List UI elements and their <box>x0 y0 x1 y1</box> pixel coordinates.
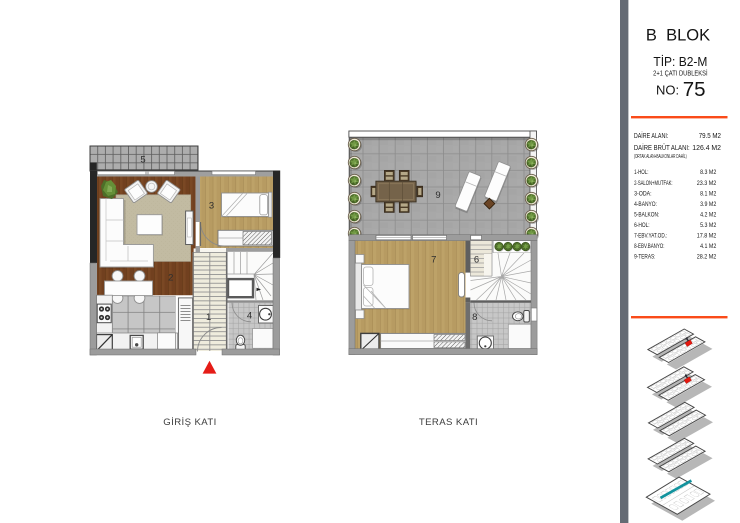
svg-text:DAİRE BRÜT ALANI:: DAİRE BRÜT ALANI: <box>634 143 690 152</box>
svg-text:2+1 ÇATI DUBLEKSİ: 2+1 ÇATI DUBLEKSİ <box>653 68 708 77</box>
svg-text:TİP: B2-M: TİP: B2-M <box>653 54 707 69</box>
svg-text:(ORTAK ALAN+BALKONLAR DAHİL): (ORTAK ALAN+BALKONLAR DAHİL) <box>634 153 687 160</box>
svg-text:3-ODA:: 3-ODA: <box>634 190 652 197</box>
svg-text:8-EBV.BANYO:: 8-EBV.BANYO: <box>634 243 665 250</box>
svg-text:1: 1 <box>206 312 211 323</box>
svg-text:4.1 M2: 4.1 M2 <box>700 243 717 250</box>
svg-text:5-BALKON:: 5-BALKON: <box>634 211 659 218</box>
svg-text:4-BANYO:: 4-BANYO: <box>634 201 657 208</box>
svg-text:B BLOK: B BLOK <box>646 26 710 44</box>
svg-text:3: 3 <box>209 201 214 212</box>
svg-text:DAİRE ALANI:: DAİRE ALANI: <box>634 131 668 140</box>
svg-text:7-EBV.YAT.OD.:: 7-EBV.YAT.OD.: <box>634 233 667 240</box>
svg-text:3.9 M2: 3.9 M2 <box>700 201 717 208</box>
svg-text:6: 6 <box>474 255 479 266</box>
svg-text:4: 4 <box>247 311 252 322</box>
svg-text:17.8 M2: 17.8 M2 <box>697 233 717 240</box>
svg-text:TERAS KATI: TERAS KATI <box>419 417 478 428</box>
svg-text:2: 2 <box>168 273 173 284</box>
svg-text:126.4 M2: 126.4 M2 <box>692 143 721 152</box>
svg-text:9: 9 <box>435 190 440 201</box>
svg-text:5: 5 <box>140 155 145 166</box>
svg-text:8.1 M2: 8.1 M2 <box>700 190 717 197</box>
svg-text:2-SALON+MUTFAK:: 2-SALON+MUTFAK: <box>634 180 673 187</box>
svg-text:23.3 M2: 23.3 M2 <box>697 180 717 187</box>
svg-text:79.5 M2: 79.5 M2 <box>699 131 721 140</box>
svg-text:28.2 M2: 28.2 M2 <box>697 254 717 261</box>
svg-text:1-HOL:: 1-HOL: <box>634 169 649 176</box>
svg-text:GİRİŞ KATI: GİRİŞ KATI <box>163 417 216 428</box>
svg-text:7: 7 <box>431 255 436 266</box>
svg-text:5.3 M2: 5.3 M2 <box>700 222 717 229</box>
svg-text:6-HOL:: 6-HOL: <box>634 222 650 229</box>
svg-text:4.2 M2: 4.2 M2 <box>700 211 717 218</box>
svg-text:8.3 M2: 8.3 M2 <box>700 169 717 176</box>
svg-text:9-TERAS:: 9-TERAS: <box>634 254 656 261</box>
svg-text:8: 8 <box>472 312 477 323</box>
